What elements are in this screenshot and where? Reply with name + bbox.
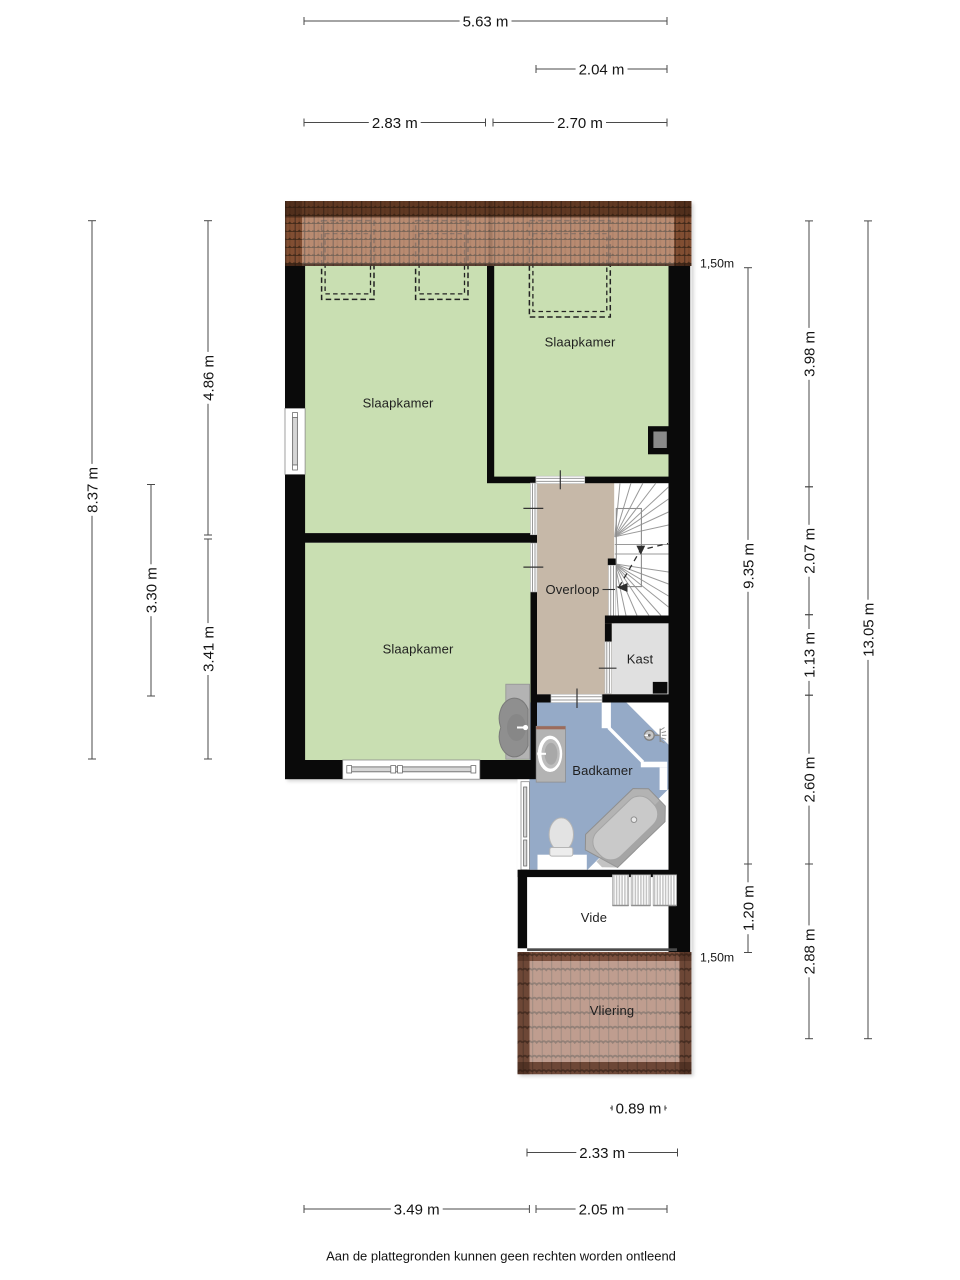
- svg-text:1,50m: 1,50m: [700, 257, 734, 271]
- svg-text:Slaapkamer: Slaapkamer: [383, 642, 454, 657]
- svg-text:Aan de plattegronden kunnen ge: Aan de plattegronden kunnen geen rechten…: [326, 1249, 676, 1264]
- svg-text:Vide: Vide: [581, 910, 607, 925]
- svg-text:Vliering: Vliering: [590, 1003, 635, 1018]
- svg-text:1.13 m: 1.13 m: [801, 632, 818, 678]
- svg-text:2.05 m: 2.05 m: [579, 1201, 625, 1218]
- svg-text:3.41 m: 3.41 m: [200, 626, 217, 672]
- svg-text:2.33 m: 2.33 m: [579, 1145, 625, 1162]
- svg-text:9.35 m: 9.35 m: [740, 543, 757, 589]
- svg-text:1.20 m: 1.20 m: [740, 885, 757, 931]
- svg-text:2.07 m: 2.07 m: [801, 528, 818, 574]
- svg-text:Overloop: Overloop: [546, 582, 600, 597]
- svg-text:2.88 m: 2.88 m: [801, 928, 818, 974]
- svg-text:1,50m: 1,50m: [700, 951, 734, 965]
- svg-text:4.86 m: 4.86 m: [200, 355, 217, 401]
- svg-text:2.60 m: 2.60 m: [801, 757, 818, 803]
- svg-text:5.63 m: 5.63 m: [463, 13, 509, 30]
- svg-text:3.30 m: 3.30 m: [143, 567, 160, 613]
- svg-text:0.89 m: 0.89 m: [616, 1100, 662, 1117]
- svg-text:13.05 m: 13.05 m: [860, 603, 877, 657]
- svg-text:2.04 m: 2.04 m: [579, 61, 625, 78]
- svg-text:2.70 m: 2.70 m: [557, 115, 603, 132]
- svg-text:Kast: Kast: [627, 652, 654, 667]
- svg-text:3.98 m: 3.98 m: [801, 331, 818, 377]
- svg-text:Slaapkamer: Slaapkamer: [545, 335, 616, 350]
- svg-text:Badkamer: Badkamer: [572, 763, 633, 778]
- svg-text:3.49 m: 3.49 m: [394, 1201, 440, 1218]
- svg-text:8.37 m: 8.37 m: [84, 467, 101, 513]
- svg-text:2.83 m: 2.83 m: [372, 115, 418, 132]
- svg-text:Slaapkamer: Slaapkamer: [363, 396, 434, 411]
